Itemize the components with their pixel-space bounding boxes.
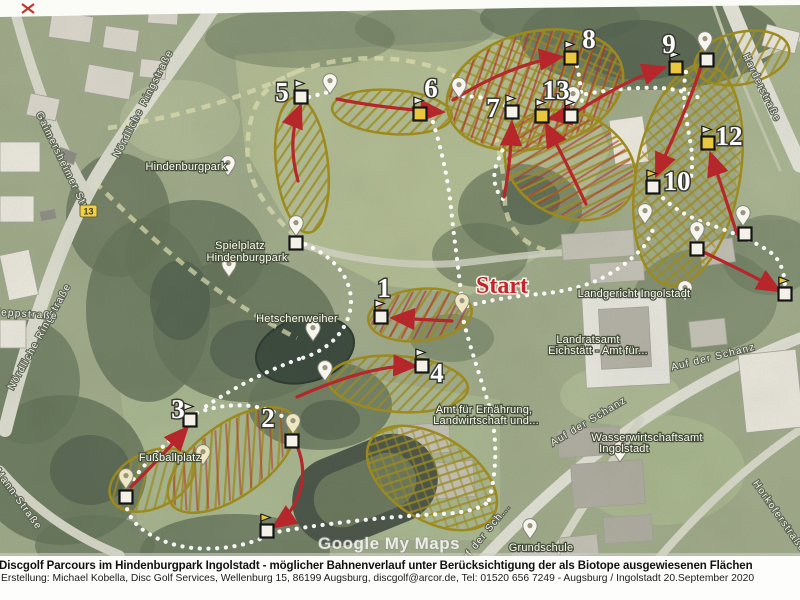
hole-number: 10: [664, 166, 691, 196]
tee-flag-marker: [375, 300, 388, 324]
tee-flag-marker: [702, 126, 715, 150]
tee-flag-marker: [647, 170, 660, 194]
tee-flag-marker: [565, 41, 578, 65]
place-label: Hetschenweiher: [256, 313, 338, 325]
place-label: Landgericht Ingolstadt: [578, 288, 691, 300]
tee-flag-marker: [184, 403, 197, 427]
place-label: Grundschule: [509, 542, 574, 554]
hole-number: 7: [486, 93, 500, 123]
road-shield-b13: 13: [80, 205, 97, 217]
hole-number: 12: [716, 121, 743, 151]
tee-flag-marker: [779, 277, 792, 301]
place-label: Fußballplatz: [139, 452, 201, 464]
google-watermark: Google My Maps: [318, 534, 460, 553]
hole-number: 4: [430, 358, 444, 388]
hole-number: 9: [662, 29, 676, 59]
svg-text:13: 13: [83, 207, 93, 217]
map-area: 123456789101213 HindenburgparkSpielplatz…: [0, 0, 800, 556]
hole-number: 13: [543, 75, 570, 105]
tee-flag-marker: [290, 237, 303, 250]
scanned-discgolf-map-page: 123456789101213 HindenburgparkSpielplatz…: [0, 0, 800, 600]
hole-number: 3: [171, 394, 185, 424]
tee-flag-marker: [120, 491, 133, 504]
place-label: Landwirtschaft und...: [433, 415, 539, 427]
tee-flag-marker: [701, 54, 714, 67]
tee-flag-marker: [416, 349, 429, 373]
place-label: Ingolstadt: [599, 443, 649, 455]
tee-flag-marker: [691, 243, 704, 256]
hole-number: 6: [424, 73, 438, 103]
caption-bar: Discgolf Parcours im Hindenburgpark Ingo…: [0, 556, 800, 600]
hole-number: 5: [275, 77, 289, 107]
place-label: Spielplatz: [215, 240, 265, 252]
map-canvas: 123456789101213 HindenburgparkSpielplatz…: [0, 0, 800, 556]
start-label: Start: [476, 273, 528, 299]
tee-flag-marker: [286, 435, 299, 448]
hole-number: 2: [261, 403, 275, 433]
place-label: Eichstätt - Amt für...: [548, 345, 648, 357]
tee-flag-marker: [739, 228, 752, 241]
caption-title: Discgolf Parcours im Hindenburgpark Ingo…: [0, 560, 800, 572]
place-label: Hindenburgpark: [145, 161, 226, 173]
hole-number: 1: [377, 273, 391, 303]
place-label: Hindenburgpark: [206, 252, 287, 264]
caption-credit: Erstellung: Michael Kobella, Disc Golf S…: [1, 573, 800, 584]
tee-flag-marker: [506, 95, 519, 119]
hole-number: 8: [582, 24, 596, 54]
tee-flag-marker: [261, 514, 274, 538]
tee-flag-marker: [295, 80, 308, 104]
